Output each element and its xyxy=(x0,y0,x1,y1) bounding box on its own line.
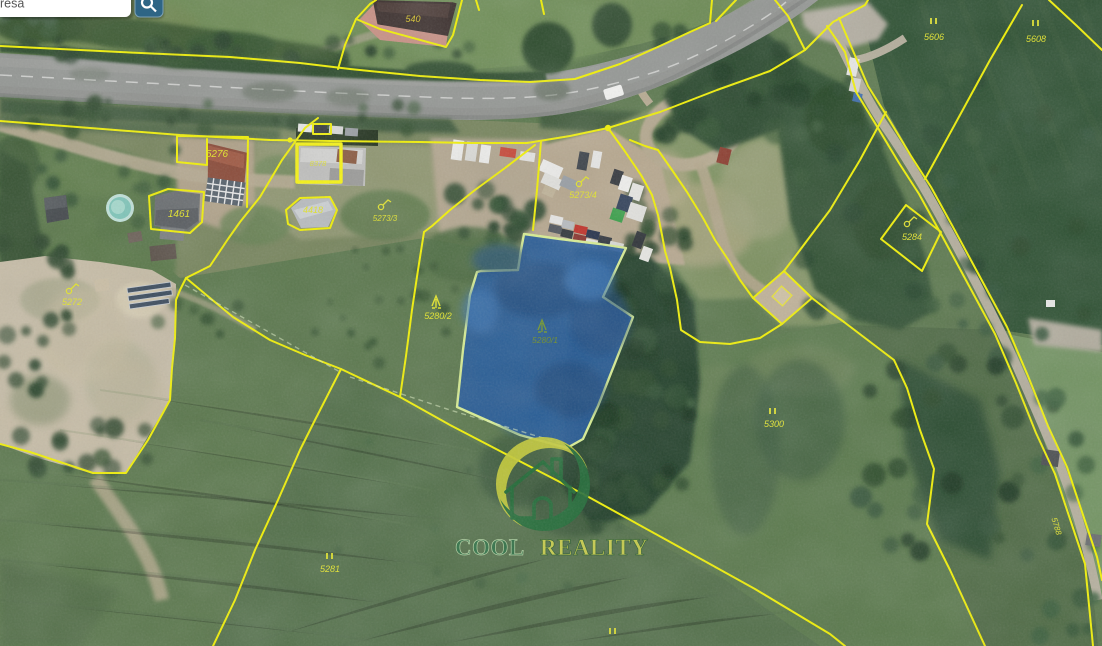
svg-text:resa: resa xyxy=(0,0,24,11)
